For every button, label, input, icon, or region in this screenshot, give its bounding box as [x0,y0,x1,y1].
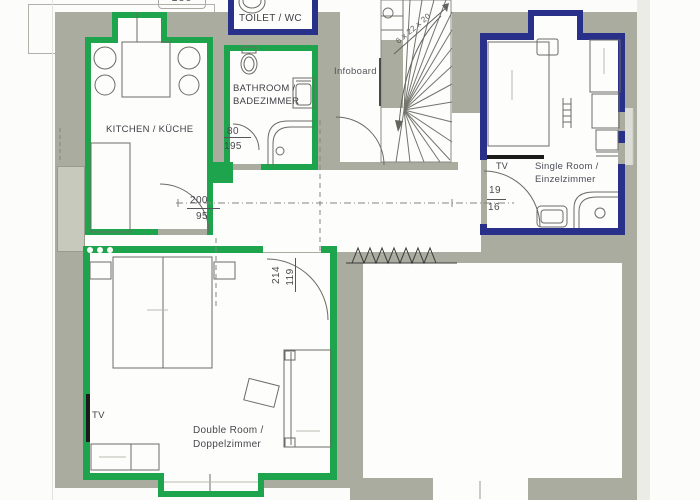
corridor-floor-west [85,235,213,246]
double-room-wall [330,246,337,480]
kitchen-wall [85,37,91,235]
double-room-label-line1: Double Room / [193,425,264,437]
scan-right-strip [637,0,650,500]
clipped-edge-dimension: 185 [158,0,206,9]
single-room-tv-label: TV [496,160,508,172]
corridor-floor [213,170,481,252]
single-room-wall [528,10,534,40]
living-area-floor [363,263,622,478]
double-room-label-line2: Doppelzimmer [193,439,261,451]
bath-door-dim-bottom: 195 [224,141,242,152]
single-room-wall [577,10,583,40]
bay-window-floor [164,468,258,491]
kitchen-wall [161,12,167,43]
bathroom-wall [224,45,318,51]
window-sill [625,108,633,165]
bath-door-dim-top: 80 [227,126,239,137]
kitchen-door-dim-top: 200 [190,195,208,206]
single-room-wall [618,33,625,112]
dim-line [187,208,220,209]
stair-hall-floor [340,0,382,162]
single-room-wall [480,33,487,160]
bathroom-label-line1: BATHROOM / [233,83,295,95]
single-room-label-line1: Single Room / [535,161,599,173]
single-room-label-line2: Einzelzimmer [535,174,596,186]
floor-plan: KITCHEN / KÜCHE TOILET / WC BATHROOM / B… [0,0,700,500]
kitchen-label: KITCHEN / KÜCHE [106,124,193,136]
bathroom-wall [261,164,318,170]
kitchen-bay-floor [118,18,161,43]
bathroom-label-line2: BADEZIMMER [233,96,299,108]
wall-bottom-mid [350,480,433,500]
single-room-bay-floor [534,16,577,40]
single-door-dim-top: 19 [489,185,501,196]
single-door-dim-bottom: 16 [488,202,500,213]
double-door-dim-b: 119 [285,259,297,295]
double-door-dim-a: 214 [271,257,283,293]
double-room-wall [83,246,90,480]
bathroom-wall [312,45,318,170]
double-room-wall [83,246,263,253]
left-wall-niche [57,166,85,252]
kitchen-door-dim-bottom: 95 [196,211,208,222]
single-room-wall [528,10,583,16]
single-room-wall [618,164,625,235]
single-room-wall [618,131,625,143]
kitchen-wall [85,229,158,235]
single-room-floor [487,40,618,228]
kitchen-wall [112,12,167,18]
living-area-door-gap [433,478,528,500]
scan-edge-line [52,0,53,500]
wall-bottom-right [528,480,637,500]
double-room-tv-label: TV [92,410,105,422]
toilet-wall [228,29,318,35]
bay-window-wall [158,491,264,497]
single-room-wall [480,33,534,40]
single-room-wall [480,228,625,235]
stair-landing-wall [381,40,403,108]
stair-bottom-wall [340,162,458,170]
dim-line [224,137,251,138]
infoboard-label: Infoboard [334,66,377,78]
dim-line [487,199,506,200]
bathroom-wall [224,164,233,170]
toilet-label: TOILET / WC [239,13,302,25]
